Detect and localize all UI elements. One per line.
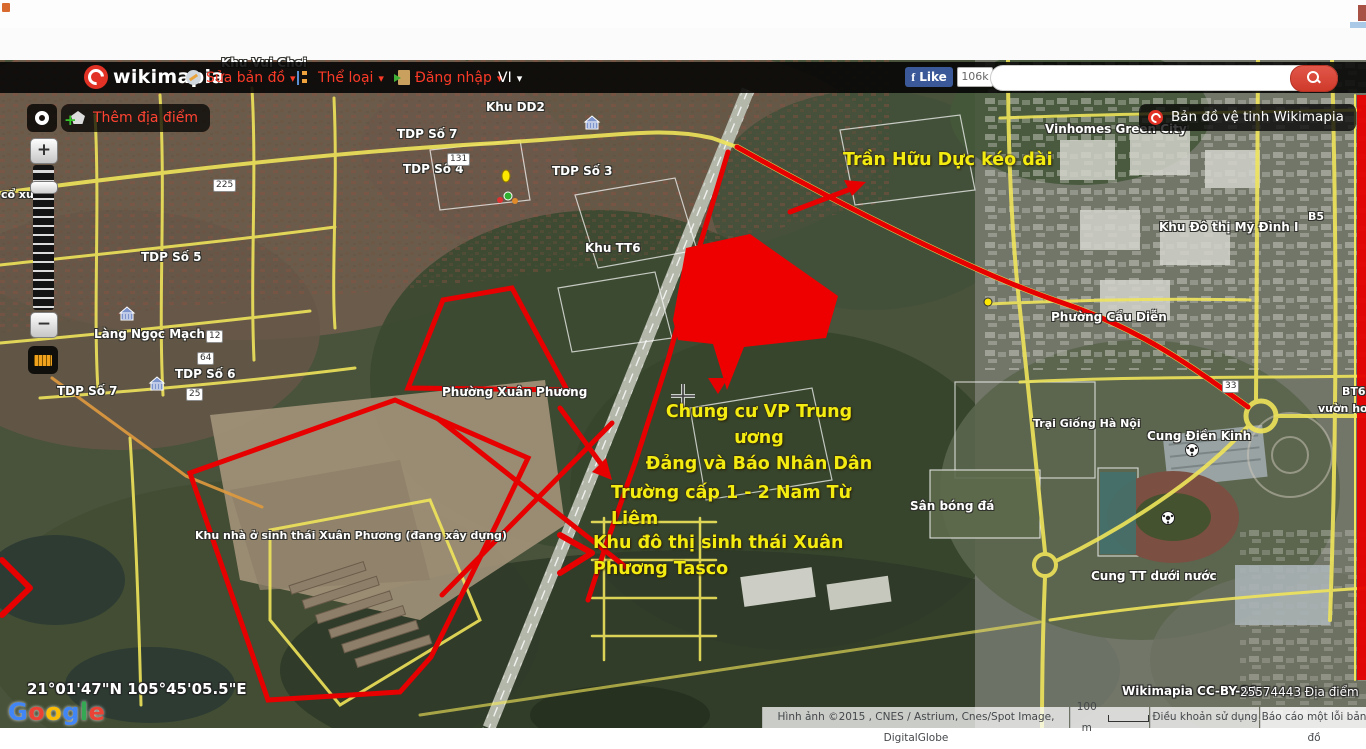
google-letter: o [45,698,62,726]
menu-categories-label: Thể loại [318,70,373,86]
orange-marker-icon [512,198,518,204]
menu-categories[interactable]: Thể loại [297,62,384,93]
place-label[interactable]: Khu DD2 [486,100,545,114]
place-label[interactable]: TDP Số 5 [141,250,202,264]
annotation-chung-cu: Chung cư VP Trung ương Đảng và Báo Nhân … [645,399,873,477]
zoom-out-button[interactable]: − [30,312,58,338]
plus-icon: + [64,113,77,128]
report-map-error-link[interactable]: Báo cáo một lỗi bản đồ [1260,707,1366,728]
wikimapia-license: Wikimapia CC-BY-SA [1122,684,1258,698]
road-badge: 25 [186,388,203,401]
soccer-ball-icon [1162,512,1175,525]
annotation-tran-huu-duc: Trần Hữu Dực kéo dài [843,147,1053,173]
chevron-down-icon [290,70,296,86]
menu-language-label: VI [498,70,512,86]
red-marker-icon [497,197,503,203]
annotation-khu-do-thi: Khu đô thị sinh thái Xuân Phương Tasco [593,530,844,582]
scale-bar [1108,715,1149,722]
ruler-icon [34,355,52,366]
place-label[interactable]: Cung TT dưới nước [1091,569,1217,583]
place-label[interactable]: Làng Ngọc Mạch [94,327,205,341]
menu-edit-map[interactable]: Sửa bản đồ [186,62,296,93]
locate-button[interactable] [27,104,57,132]
locate-icon [35,111,49,125]
road-badge: 225 [213,179,236,192]
wikimapia-header: wikimapia Sửa bản đồ Thể loại Đăng nhập … [0,62,1366,93]
satellite-layer-button[interactable]: Bản đồ vệ tinh Wikimapia [1139,104,1356,131]
google-letter: g [62,698,80,726]
place-label[interactable]: TDP Số 7 [57,384,118,398]
coordinates-readout: 21°01'47"N 105°45'05.5"E [27,680,247,698]
google-letter: l [80,698,89,726]
google-logo: Google [8,698,105,726]
place-label[interactable]: TDP Số 3 [552,164,613,178]
add-place-button[interactable]: + Thêm địa điểm [61,104,210,132]
wikimapia-mini-logo-icon [1148,110,1163,125]
browser-toolbar: wikimapia.org/#lang=vi&lat=21.029732&lon… [0,28,1366,61]
login-door-icon [398,70,410,85]
road-badge: 131 [447,153,470,166]
menu-login[interactable]: Đăng nhập [398,62,502,93]
place-label[interactable]: cổ xu [1,188,34,201]
road-badge: 64 [197,352,214,365]
place-label[interactable]: Khu nhà ở sinh thái Xuân Phương (đang xâ… [195,529,507,542]
search-button[interactable] [1290,65,1338,92]
place-label[interactable]: B5 [1308,210,1324,223]
search-icon [1307,71,1319,83]
place-label[interactable]: Sân bóng đá [910,499,994,513]
road-badge: 33 [1222,380,1239,393]
green-marker-icon [504,192,512,200]
search-box [990,65,1338,91]
zoom-in-button[interactable]: + [30,138,58,164]
window-edge-decoration [1358,5,1366,21]
google-letter: G [8,698,28,726]
wikimapia-screenshot: { "browser": { "url": "wikimapia.org/#la… [0,0,1366,728]
google-letter: e [89,698,106,726]
tab-favicon-fragment [2,3,10,12]
place-label[interactable]: vườn ho [1318,402,1366,415]
annotation-truong-cap: Trường cấp 1 - 2 Nam Từ Liêm [611,480,851,532]
place-label[interactable]: Khu TT6 [585,241,641,255]
place-label[interactable]: Khu Đô thị Mỹ Đình I [1159,220,1298,234]
terms-link[interactable]: Điều khoản sử dụng [1150,707,1259,728]
zoom-slider-handle[interactable] [30,181,58,194]
yellow-dot-icon [984,298,992,306]
place-label[interactable]: TDP Số 7 [397,127,458,141]
like-count-badge: 106k [957,67,993,87]
search-input[interactable] [1003,68,1287,88]
categories-icon [297,71,313,85]
browser-tab-strip [0,0,1366,28]
scale-label: 100 m [1071,697,1103,739]
menu-edit-map-label: Sửa bản đồ [206,70,285,86]
place-label[interactable]: Phường Xuân Phương [442,385,587,399]
scale-control: 100 m [1070,707,1149,728]
map-viewport[interactable] [0,60,1366,728]
place-label[interactable]: TDP Số 6 [175,367,236,381]
add-place-label: Thêm địa điểm [93,110,198,126]
soccer-ball-icon [1186,444,1199,457]
edit-map-icon [186,70,201,85]
place-label[interactable]: BT6 [1342,385,1366,398]
road-badge: 12 [206,330,223,343]
chevron-down-icon [517,70,523,86]
satellite-layer-label: Bản đồ vệ tinh Wikimapia [1171,109,1344,125]
place-label[interactable]: Phường Cầu Diễn [1051,310,1167,324]
yellow-marker-icon [502,170,510,182]
facebook-like-button[interactable]: Like [905,67,953,87]
place-label[interactable]: Trại Giống Hà Nội [1033,417,1141,430]
place-label[interactable]: Cung Điền Kinh [1147,429,1251,443]
measure-button[interactable] [28,346,58,374]
satellite-map[interactable] [0,60,1366,728]
imagery-attribution: Hình ảnh ©2015 , CNES / Astrium, Cnes/Sp… [762,707,1069,728]
chevron-down-icon [378,70,384,86]
menu-language[interactable]: VI [498,62,522,93]
wikimapia-logo-icon[interactable] [84,65,108,89]
menu-login-label: Đăng nhập [415,70,492,86]
google-letter: o [28,698,45,726]
places-count: 25574443 Địa điểm [1240,685,1359,699]
